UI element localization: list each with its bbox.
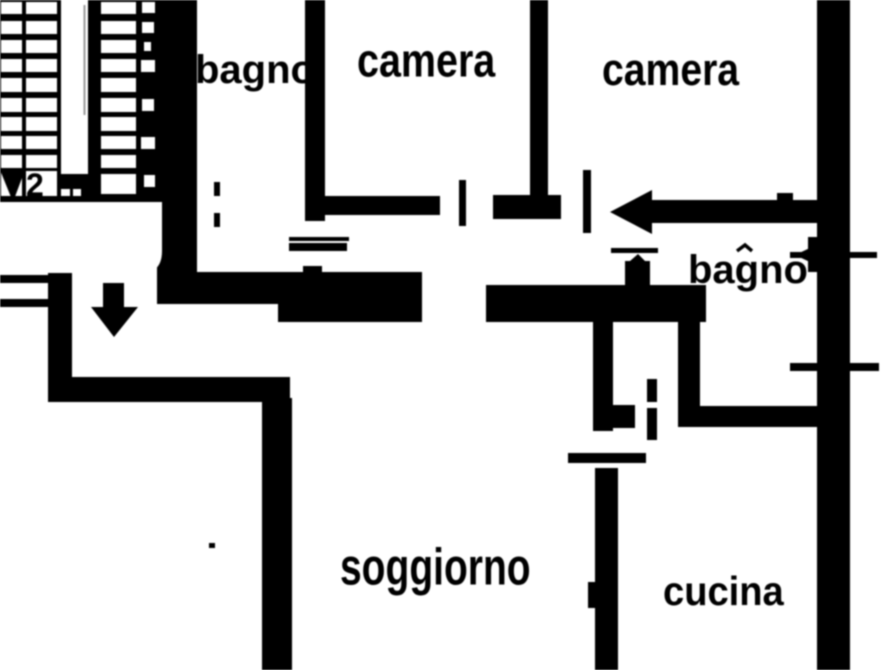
svg-text:camera: camera [357, 35, 496, 87]
svg-text:2: 2 [26, 167, 44, 203]
svg-text:cucina: cucina [663, 569, 785, 615]
svg-text:soggiorno: soggiorno [340, 537, 531, 596]
svg-text:camera: camera [602, 44, 740, 94]
svg-text:bagno: bagno [195, 48, 315, 92]
svg-text:bagno: bagno [688, 248, 808, 292]
